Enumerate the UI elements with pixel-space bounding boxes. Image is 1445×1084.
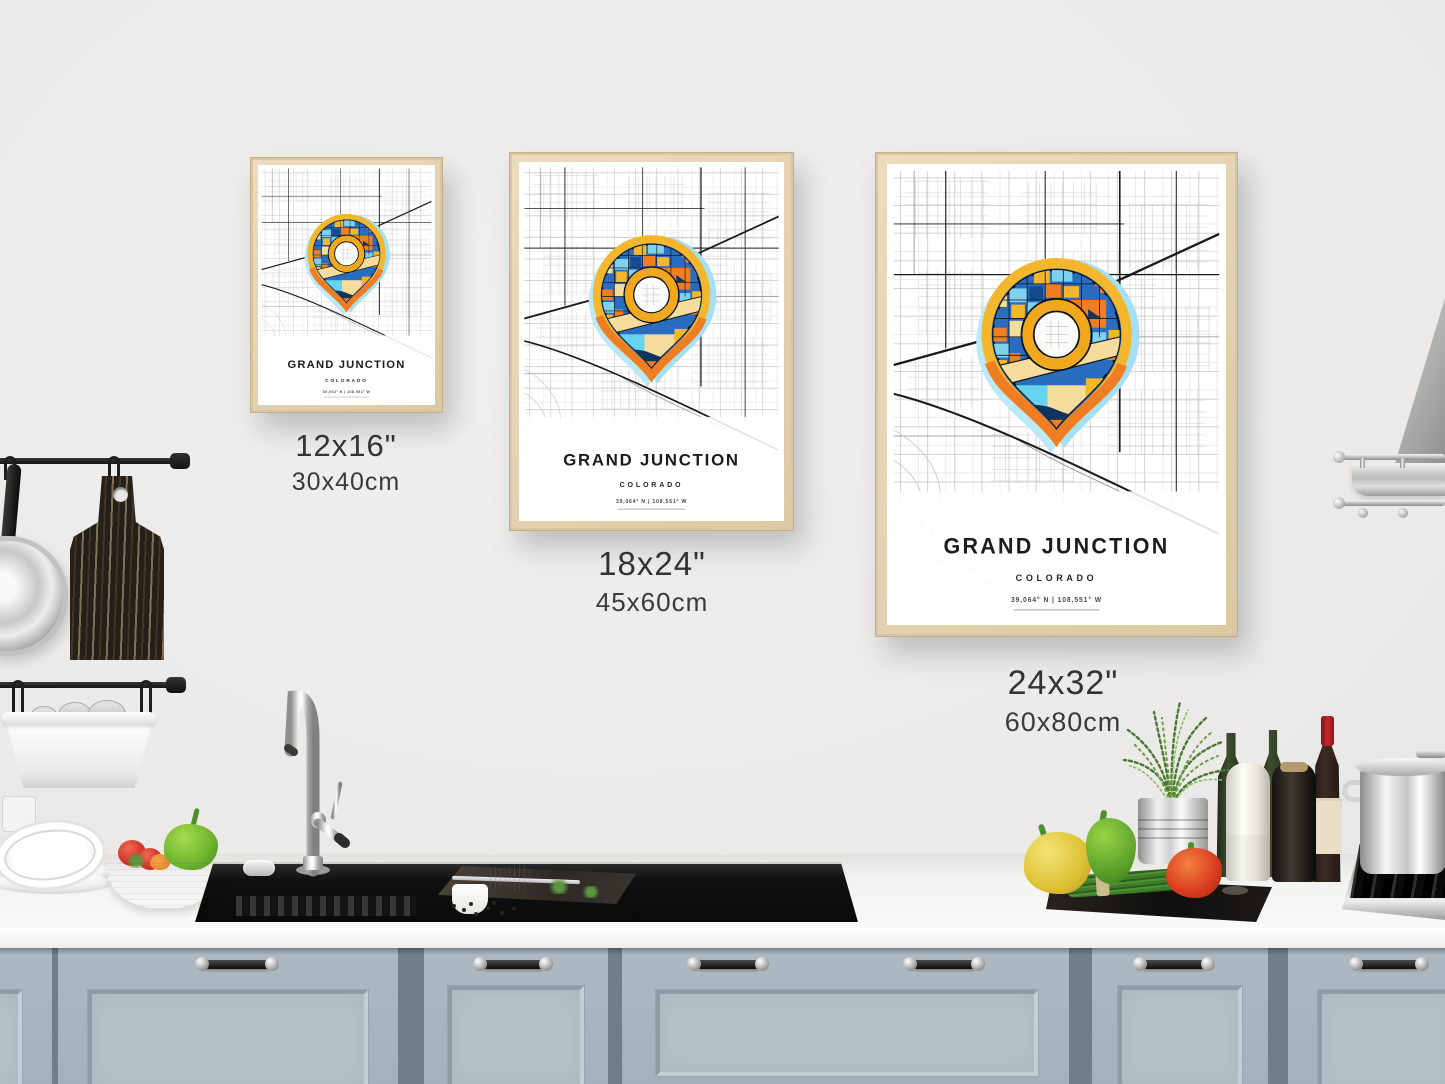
size-inches: 12x16" [236, 428, 456, 464]
poster-medium-paper: GRAND JUNCTION COLORADO 39,064° N | 108,… [519, 162, 784, 521]
cabinet-panel [0, 990, 22, 1084]
cabinet-panel [448, 986, 584, 1084]
hood-rail-post [1400, 458, 1405, 468]
faucet [255, 680, 355, 880]
frying-pan [0, 536, 68, 656]
hood-rail-post [1360, 458, 1365, 468]
poster-coordinates: 39,064° N | 108,551° W [1011, 596, 1102, 604]
lower-cabinets [0, 948, 1445, 1084]
poster-title: GRAND JUNCTION [288, 359, 406, 371]
sink-drainboard-grooves [236, 896, 416, 916]
cabinet-panel [1118, 986, 1242, 1084]
board-handle-hole [1222, 886, 1248, 895]
poster-coordinates: 39,064° N | 108,551° W [616, 499, 687, 505]
size-label-medium: 18x24" 45x60cm [542, 545, 762, 618]
hood-rail-ball [1398, 508, 1408, 518]
poster-title: GRAND JUNCTION [944, 533, 1170, 558]
cabinet-handle [1142, 960, 1206, 969]
wall-rail-upper [0, 458, 188, 464]
range-hood-shelf [1352, 463, 1445, 496]
grinder-wood-cap [1280, 762, 1308, 772]
cabinet-panel [656, 990, 1038, 1076]
poster-subtitle: COLORADO [1016, 573, 1098, 583]
poster-subtitle: COLORADO [620, 481, 684, 489]
size-label-small: 12x16" 30x40cm [236, 428, 456, 497]
poster-large-art: GRAND JUNCTION COLORADO 39,064° N | 108,… [887, 164, 1226, 625]
hood-rail-top [1337, 454, 1445, 460]
rail-hook [12, 680, 24, 714]
counter-front-edge [0, 928, 1445, 950]
cabinet-handle [912, 960, 976, 969]
cabinet-handle [696, 960, 760, 969]
utensil-bucket [4, 716, 154, 788]
cabinet-handle [482, 960, 544, 969]
range-hood [1393, 298, 1445, 470]
cabinet-handle [204, 960, 270, 969]
rail-hook [140, 680, 152, 714]
hanging-cutting-board [70, 476, 164, 660]
poster-credit-line [324, 397, 369, 398]
poster-coordinates: 39,064° N | 108,551° W [323, 390, 371, 394]
pot-lid [1356, 758, 1445, 776]
size-cm: 45x60cm [542, 587, 762, 618]
wall-rail-lower [0, 682, 184, 688]
pot-lid-handle [1416, 750, 1445, 758]
poster-large-frame: GRAND JUNCTION COLORADO 39,064° N | 108,… [875, 152, 1238, 637]
poster-small-paper: GRAND JUNCTION COLORADO 39,064° N | 108,… [258, 165, 435, 405]
wine-bottle-cap [1321, 716, 1334, 746]
utensil-bucket-rim [2, 712, 156, 725]
herb-sprig [580, 886, 602, 898]
herb-sprig [546, 880, 572, 894]
hood-rail-bottom [1337, 500, 1445, 506]
small-white-cup [452, 884, 488, 914]
yellow-bell-pepper [1024, 832, 1092, 894]
herb-plant [1110, 698, 1236, 808]
rail-finial [170, 453, 190, 469]
garlic-bulb [505, 864, 532, 891]
size-inches: 18x24" [542, 545, 762, 583]
wine-bottle-label [1313, 798, 1342, 854]
rail-finial [166, 677, 186, 693]
stock-pot [1360, 768, 1445, 874]
size-cm: 30x40cm [236, 468, 456, 497]
poster-small-frame: GRAND JUNCTION COLORADO 39,064° N | 108,… [250, 157, 443, 413]
cutting-board-hole [113, 487, 128, 502]
poster-small-art: GRAND JUNCTION COLORADO 39,064° N | 108,… [258, 165, 435, 405]
pepper-grains [452, 904, 456, 908]
poster-credit-line [618, 508, 685, 509]
poster-large-paper: GRAND JUNCTION COLORADO 39,064° N | 108,… [887, 164, 1226, 625]
poster-medium-art: GRAND JUNCTION COLORADO 39,064° N | 108,… [519, 162, 784, 521]
kitchen-poster-mockup: GRAND JUNCTION COLORADO 39,064° N | 108,… [0, 0, 1445, 1084]
poster-credit-line [1014, 609, 1100, 611]
hood-rail-ball [1358, 508, 1368, 518]
black-grinder [1272, 762, 1316, 882]
cabinet-panel [88, 990, 368, 1084]
red-bell-pepper [1166, 848, 1222, 898]
poster-subtitle: COLORADO [325, 378, 368, 384]
cabinet-handle [1358, 960, 1420, 969]
tin-ribs [1138, 812, 1208, 842]
poster-title: GRAND JUNCTION [563, 450, 740, 469]
poster-medium-frame: GRAND JUNCTION COLORADO 39,064° N | 108,… [509, 152, 794, 531]
cabinet-panel [1318, 990, 1445, 1084]
